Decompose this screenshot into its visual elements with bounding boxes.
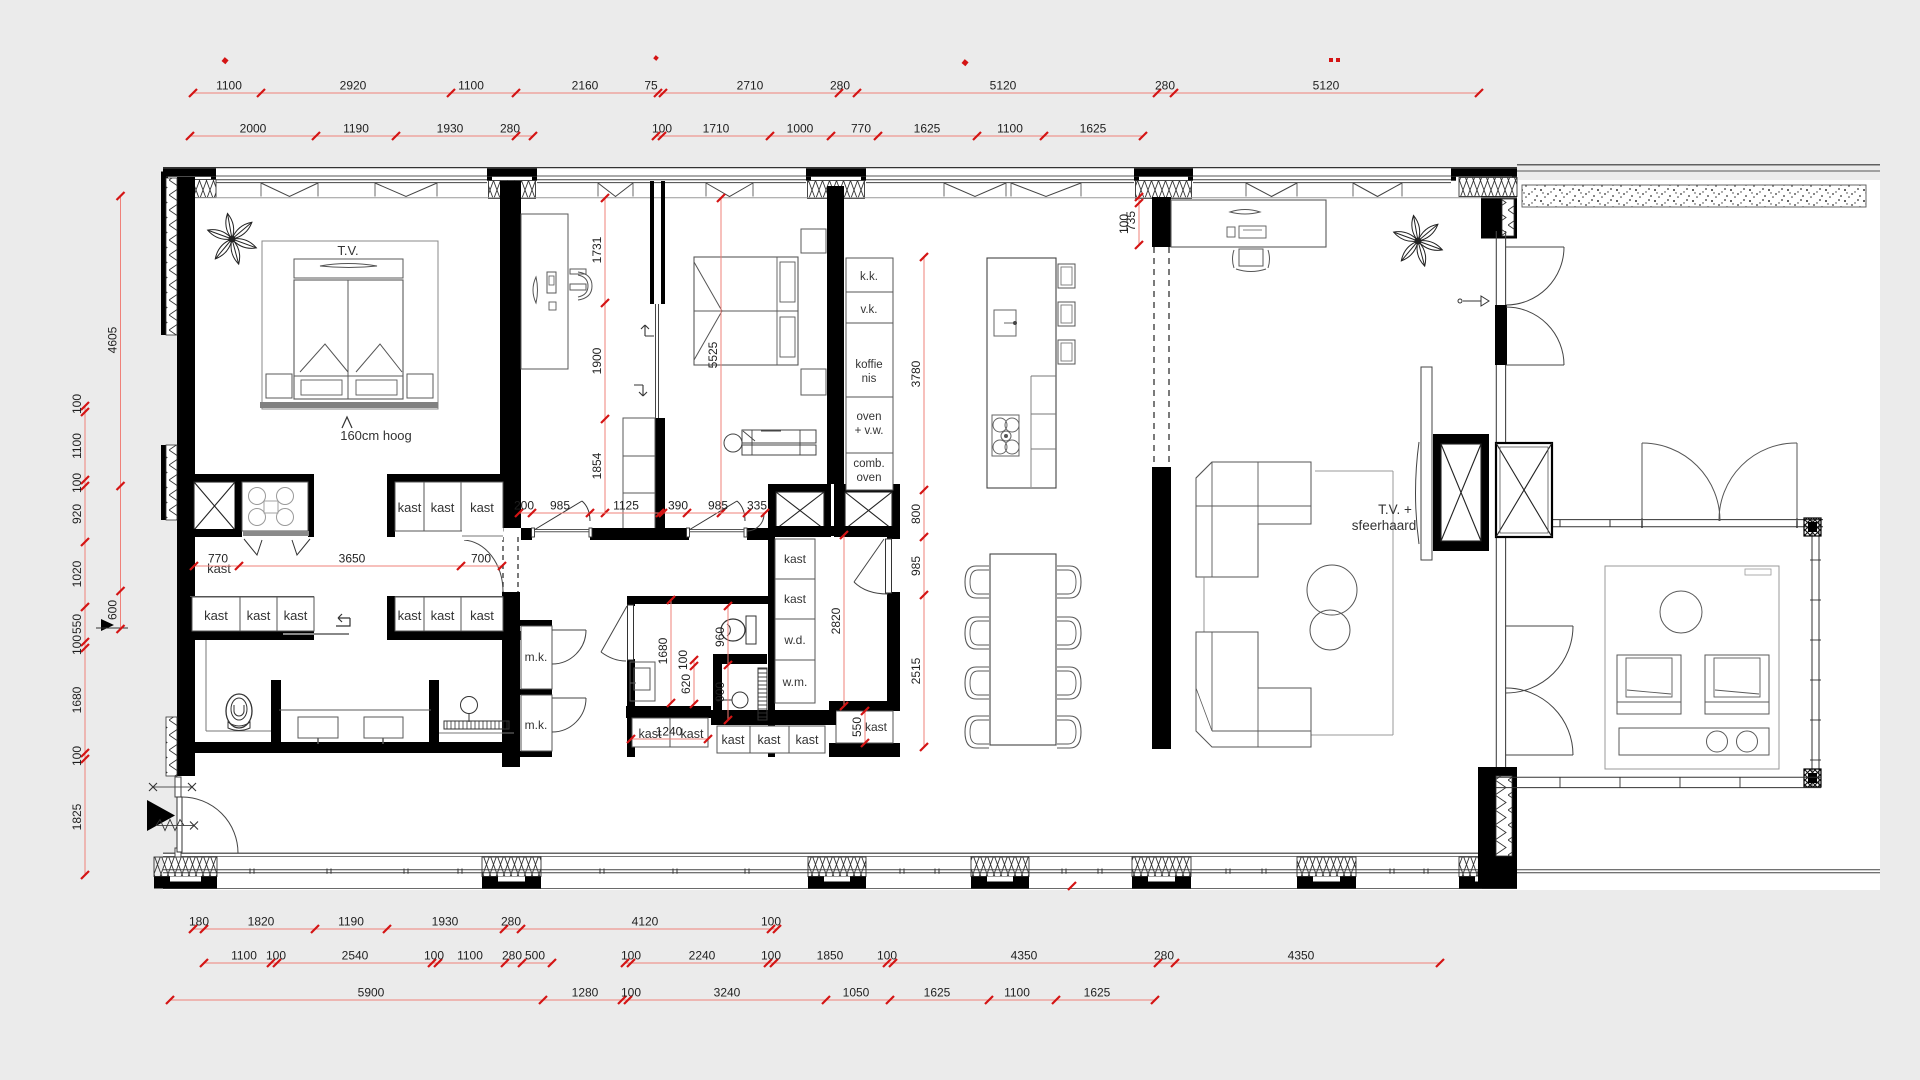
svg-text:4350: 4350 — [1288, 949, 1315, 963]
svg-text:kast: kast — [796, 733, 819, 747]
svg-text:2160: 2160 — [572, 79, 599, 93]
svg-text:500: 500 — [525, 949, 545, 963]
svg-text:985: 985 — [550, 499, 570, 513]
svg-text:280: 280 — [1154, 949, 1174, 963]
svg-text:2820: 2820 — [829, 607, 843, 634]
svg-text:5525: 5525 — [706, 341, 720, 368]
svg-text:kast: kast — [470, 500, 494, 515]
svg-text:280: 280 — [500, 122, 520, 136]
svg-text:T.V. +: T.V. + — [1378, 502, 1412, 517]
svg-text:1625: 1625 — [914, 122, 941, 136]
svg-text:1100: 1100 — [997, 122, 1023, 136]
svg-text:1020: 1020 — [70, 560, 84, 587]
svg-text:2240: 2240 — [689, 949, 716, 963]
svg-text:280: 280 — [830, 79, 850, 93]
svg-text:100: 100 — [877, 949, 897, 963]
svg-text:1100: 1100 — [231, 949, 257, 963]
svg-text:200: 200 — [514, 499, 534, 513]
svg-text:75: 75 — [644, 79, 658, 93]
svg-text:1625: 1625 — [924, 986, 951, 1000]
svg-text:800: 800 — [909, 504, 923, 524]
svg-text:280: 280 — [501, 915, 521, 929]
svg-text:550: 550 — [70, 614, 84, 634]
svg-text:kast: kast — [865, 720, 888, 734]
svg-text:1731: 1731 — [590, 236, 604, 263]
svg-text:1625: 1625 — [1080, 122, 1107, 136]
svg-text:kast: kast — [398, 500, 422, 515]
svg-text:+ v.w.: + v.w. — [855, 425, 884, 437]
svg-text:600: 600 — [106, 600, 120, 620]
svg-text:4350: 4350 — [1011, 949, 1038, 963]
svg-text:1100: 1100 — [216, 79, 242, 93]
svg-text:1625: 1625 — [1084, 986, 1111, 1000]
svg-text:kast: kast — [784, 592, 807, 606]
svg-text:390: 390 — [668, 499, 688, 513]
svg-text:985: 985 — [909, 556, 923, 576]
svg-text:2710: 2710 — [737, 79, 764, 93]
svg-text:100: 100 — [70, 394, 84, 414]
svg-text:620: 620 — [679, 674, 693, 694]
svg-text:100: 100 — [1117, 214, 1131, 234]
svg-text:kast: kast — [431, 608, 455, 623]
svg-text:1710: 1710 — [703, 122, 730, 136]
svg-text:T.V.: T.V. — [337, 243, 358, 258]
svg-text:100: 100 — [424, 949, 444, 963]
svg-text:1854: 1854 — [590, 452, 604, 479]
svg-text:100: 100 — [621, 949, 641, 963]
svg-text:100: 100 — [70, 746, 84, 766]
svg-text:900: 900 — [713, 682, 727, 702]
svg-text:1125: 1125 — [613, 499, 639, 513]
svg-text:1930: 1930 — [437, 122, 464, 136]
svg-text:kast: kast — [758, 733, 781, 747]
svg-text:w.m.: w.m. — [782, 675, 808, 689]
svg-text:1190: 1190 — [338, 915, 364, 929]
svg-text:180: 180 — [189, 915, 209, 929]
svg-text:960: 960 — [713, 627, 727, 647]
svg-text:2515: 2515 — [909, 657, 923, 684]
svg-text:1100: 1100 — [458, 79, 484, 93]
svg-text:kast: kast — [470, 608, 494, 623]
svg-text:kast: kast — [431, 500, 455, 515]
svg-text:k.k.: k.k. — [860, 271, 878, 283]
svg-text:100: 100 — [676, 650, 690, 670]
svg-text:3240: 3240 — [714, 986, 741, 1000]
svg-text:kast: kast — [722, 733, 745, 747]
svg-text:sfeerhaard: sfeerhaard — [1352, 518, 1417, 533]
svg-text:nis: nis — [862, 373, 877, 385]
svg-text:280: 280 — [502, 949, 522, 963]
svg-text:kast: kast — [204, 608, 228, 623]
svg-text:kast: kast — [284, 608, 308, 623]
svg-text:kast: kast — [784, 552, 807, 566]
svg-text:3650: 3650 — [339, 552, 366, 566]
svg-text:1240: 1240 — [656, 725, 683, 739]
svg-text:100: 100 — [70, 473, 84, 493]
svg-text:700: 700 — [471, 552, 491, 566]
svg-text:2000: 2000 — [240, 122, 267, 136]
svg-text:100: 100 — [266, 949, 286, 963]
svg-text:1820: 1820 — [248, 915, 275, 929]
svg-text:1825: 1825 — [70, 803, 84, 830]
svg-text:770: 770 — [208, 552, 228, 566]
svg-text:100: 100 — [761, 915, 781, 929]
svg-text:335: 335 — [747, 499, 767, 513]
svg-text:550: 550 — [850, 717, 864, 737]
svg-text:m.k.: m.k. — [525, 718, 548, 732]
svg-text:1900: 1900 — [590, 347, 604, 374]
svg-text:1680: 1680 — [70, 686, 84, 713]
svg-text:5120: 5120 — [990, 79, 1017, 93]
svg-text:985: 985 — [708, 499, 728, 513]
svg-text:1100: 1100 — [1004, 986, 1030, 1000]
svg-text:770: 770 — [851, 122, 871, 136]
svg-text:1100: 1100 — [457, 949, 483, 963]
svg-text:100: 100 — [761, 949, 781, 963]
svg-text:1850: 1850 — [817, 949, 844, 963]
svg-text:w.d.: w.d. — [783, 633, 805, 647]
svg-text:280: 280 — [1155, 79, 1175, 93]
svg-text:1050: 1050 — [843, 986, 870, 1000]
svg-text:oven: oven — [857, 411, 882, 423]
svg-text:v.k.: v.k. — [860, 304, 877, 316]
svg-text:1930: 1930 — [432, 915, 459, 929]
svg-text:4120: 4120 — [632, 915, 659, 929]
svg-text:3780: 3780 — [909, 360, 923, 387]
svg-text:comb.: comb. — [853, 458, 884, 470]
svg-text:5120: 5120 — [1313, 79, 1340, 93]
svg-text:m.k.: m.k. — [525, 650, 548, 664]
svg-text:5900: 5900 — [358, 986, 385, 1000]
svg-text:1000: 1000 — [787, 122, 814, 136]
svg-text:oven: oven — [857, 472, 882, 484]
svg-text:100: 100 — [621, 986, 641, 1000]
svg-text:1100: 1100 — [70, 433, 84, 459]
svg-text:1280: 1280 — [572, 986, 599, 1000]
svg-text:1680: 1680 — [656, 637, 670, 664]
svg-text:2540: 2540 — [342, 949, 369, 963]
svg-text:2920: 2920 — [340, 79, 367, 93]
svg-text:kast: kast — [247, 608, 271, 623]
svg-text:920: 920 — [70, 504, 84, 524]
svg-text:4605: 4605 — [106, 326, 120, 353]
svg-text:koffie: koffie — [855, 359, 882, 371]
svg-text:100: 100 — [652, 122, 672, 136]
svg-text:100: 100 — [70, 635, 84, 655]
svg-text:kast: kast — [398, 608, 422, 623]
svg-text:160cm hoog: 160cm hoog — [340, 428, 412, 443]
svg-text:1190: 1190 — [343, 122, 369, 136]
